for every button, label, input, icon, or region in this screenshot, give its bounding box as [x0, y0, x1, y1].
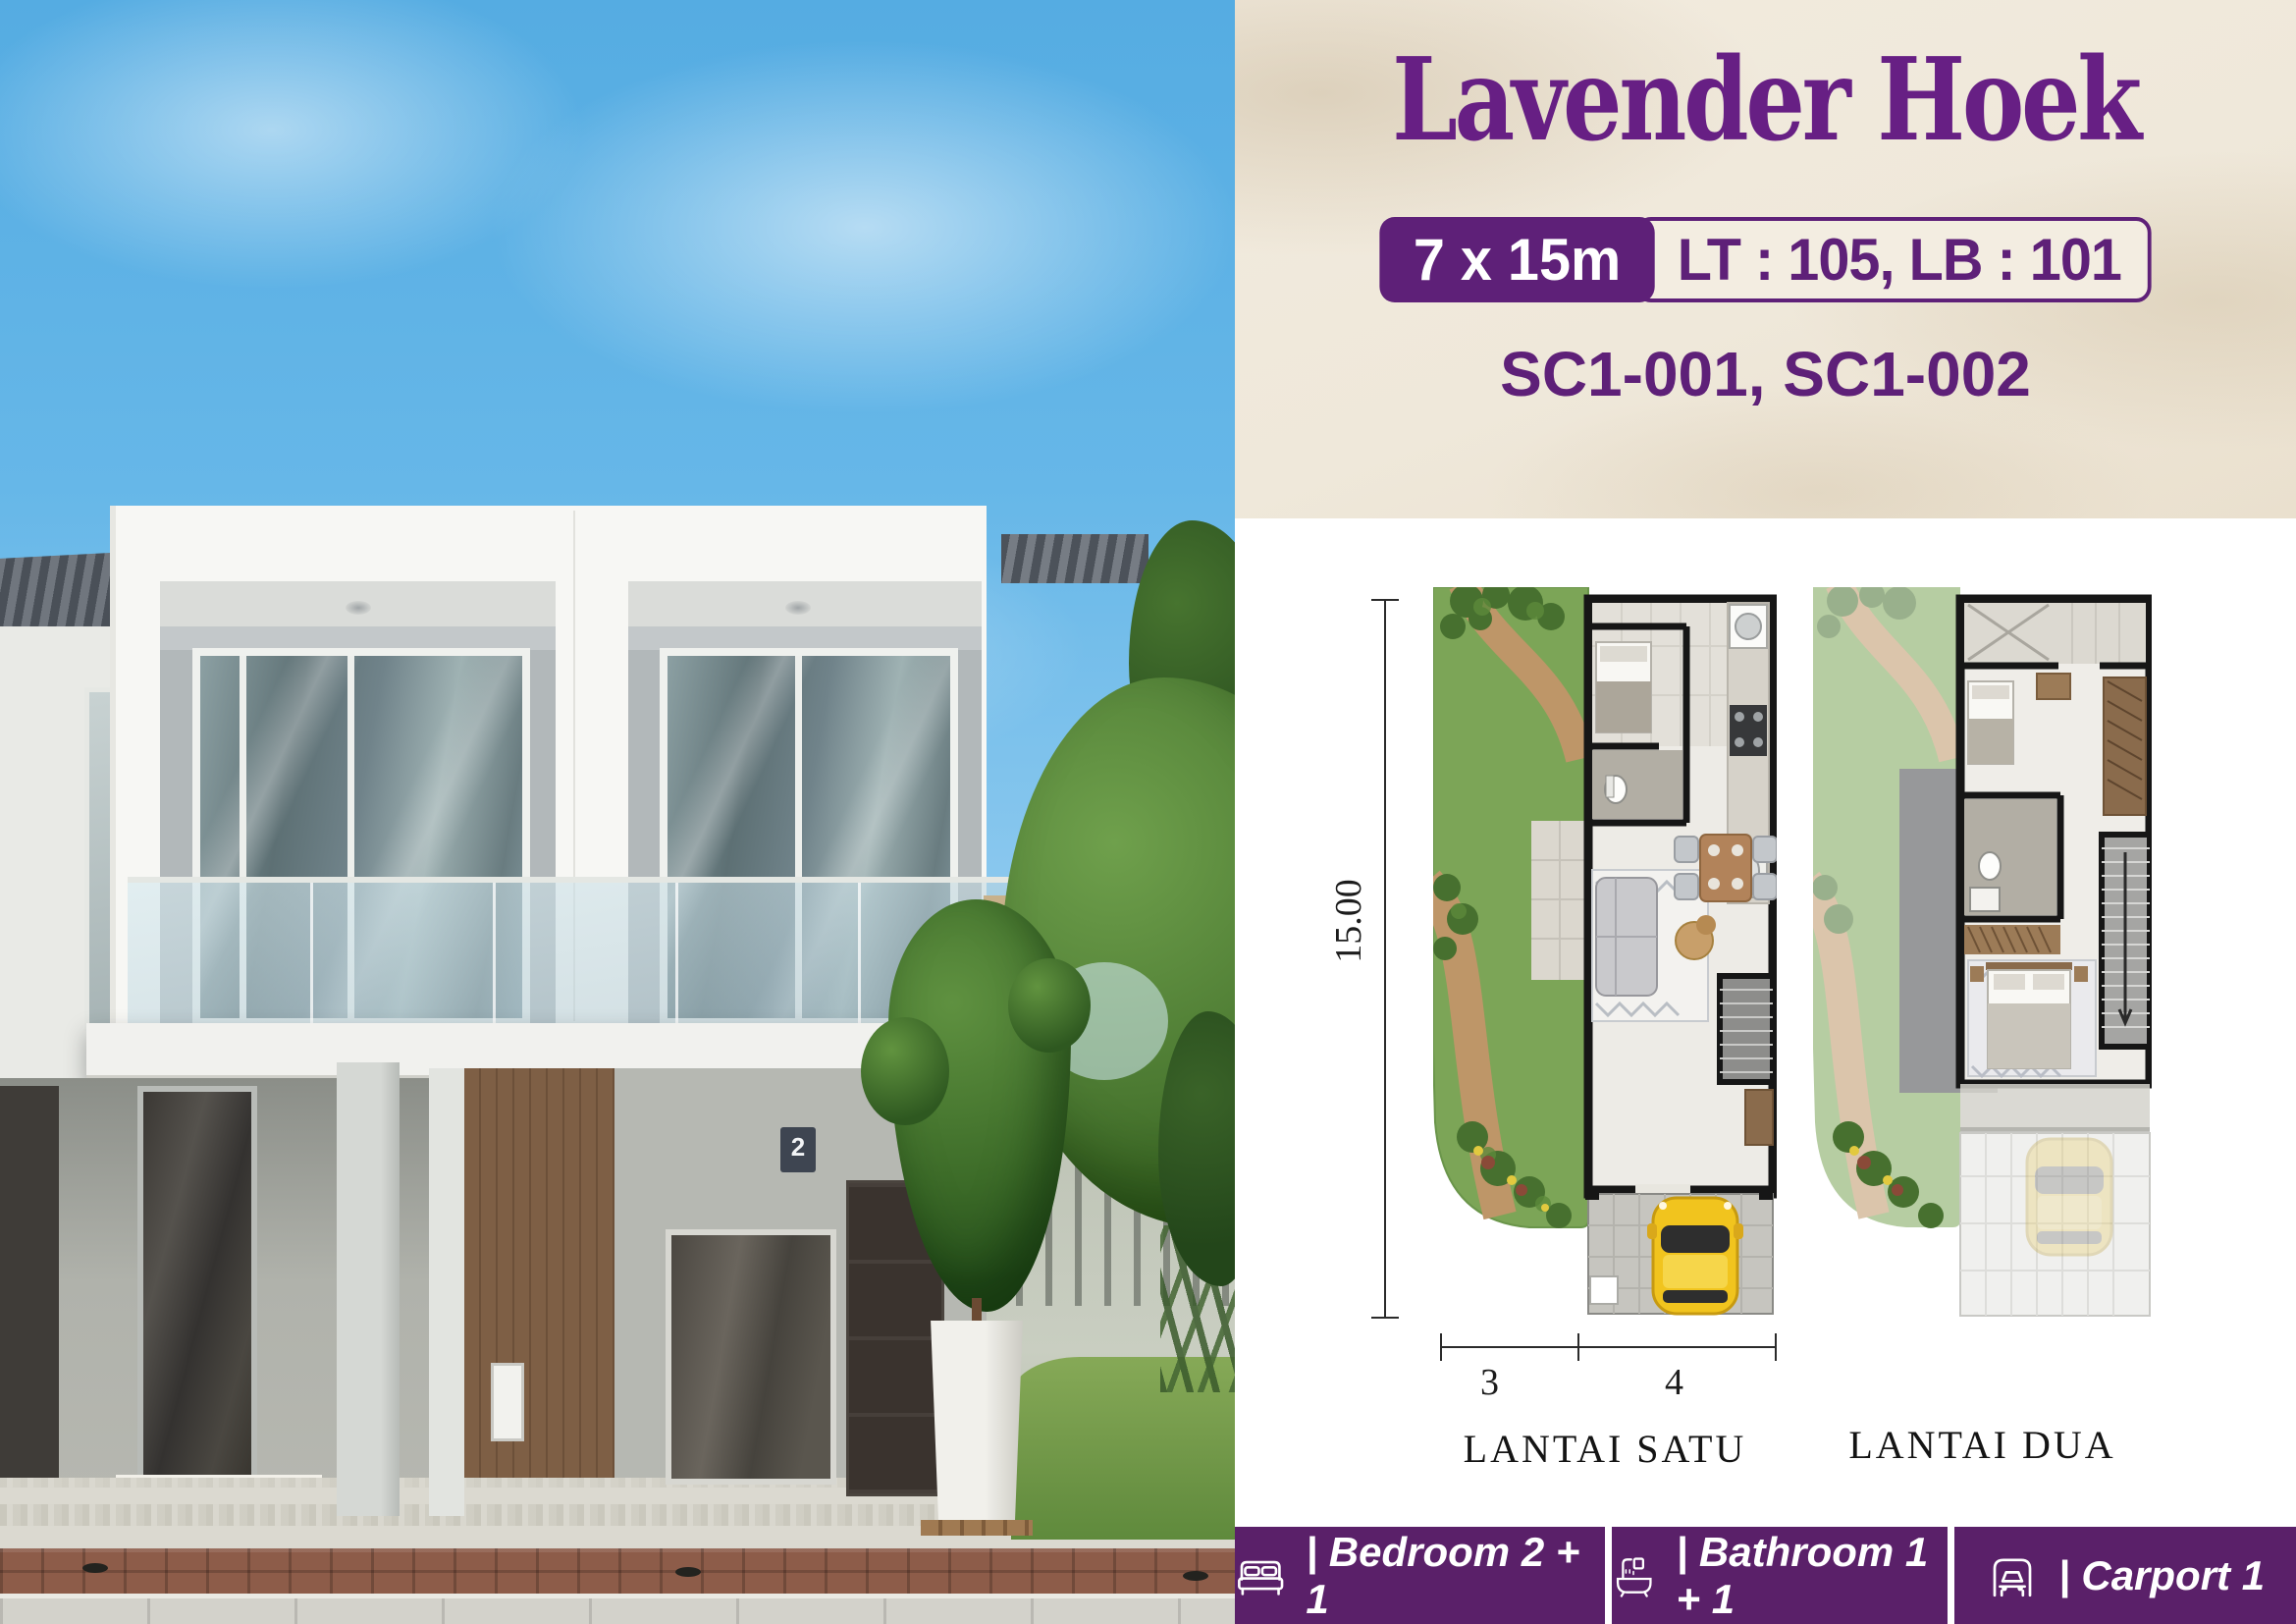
ceiling-light: [785, 601, 811, 615]
bed-icon: [1235, 1549, 1286, 1602]
dimension-tick: [1440, 1333, 1442, 1361]
unit-codes: SC1-001, SC1-002: [1235, 338, 2296, 410]
badge-row: 7 x 15m LT : 105, LB : 101: [1256, 217, 2275, 302]
white-planter: [927, 1321, 1027, 1527]
plan2-house: [1960, 599, 2150, 1084]
page-title: Lavender Hoek: [1330, 41, 2200, 161]
feature-carport-label: | Carport 1: [2058, 1552, 2265, 1599]
feature-bathroom-label: | Bathroom 1 + 1: [1677, 1529, 1948, 1623]
utility-box: [491, 1363, 524, 1441]
plan2-ghost-car: [2027, 1139, 2111, 1255]
planter-base: [921, 1520, 1033, 1536]
plan1-patio: [1531, 821, 1588, 980]
dimension-tick: [1577, 1333, 1579, 1361]
dimension-line-vertical: [1384, 599, 1386, 1319]
floor-plan-lantai-dua: [1813, 587, 2152, 1319]
glass-joint: [493, 883, 496, 1026]
porch-pillar: [337, 1062, 400, 1516]
glass-joint: [310, 883, 313, 1026]
floor1-label: LANTAI SATU: [1433, 1426, 1777, 1472]
dimension-line-horizontal: [1440, 1346, 1777, 1348]
brochure-page: 2 Lavender Hoek 7 x 15m LT : 105, LB :: [0, 0, 2296, 1624]
dimension-label-15: 15.00: [1327, 862, 1370, 980]
plan2-carport-faded: [1960, 1133, 2150, 1316]
plan2-balcony-faded: [1960, 1084, 2150, 1133]
glass-joint: [858, 883, 861, 1026]
porch-post: [429, 1068, 464, 1516]
glass-joint: [675, 883, 678, 1026]
plan1-carport: [1585, 1186, 1773, 1314]
wood-slat-wall: [464, 1068, 614, 1518]
neighbor-glass-door: [137, 1086, 257, 1489]
feature-bar: | Bedroom 2 + 1 | Bathroom 1 + 1: [1235, 1527, 2296, 1624]
floor-plan-lantai-satu: [1433, 587, 1777, 1319]
drain-cap: [1183, 1571, 1208, 1581]
feature-bedroom-label: | Bedroom 2 + 1: [1306, 1529, 1605, 1623]
street-curb: [0, 1594, 1235, 1624]
house-number-plate: 2: [780, 1127, 816, 1172]
facade-left-edge: [110, 506, 116, 1036]
floor2-label: LANTAI DUA: [1813, 1422, 2152, 1468]
house-photo: 2: [0, 0, 1235, 1624]
plan1-house: [1588, 599, 1777, 1194]
feature-carport: | Carport 1: [1954, 1527, 2296, 1624]
drain-cap: [675, 1567, 701, 1577]
ceiling-light: [346, 601, 371, 615]
neighbor-door-sliver: [0, 1086, 59, 1483]
drain-cap: [82, 1563, 108, 1573]
ground-floor-window: [666, 1229, 836, 1485]
tile-roof-sliver: [1001, 534, 1148, 583]
plan1-car: [1647, 1198, 1743, 1314]
dimension-label-3: 3: [1480, 1361, 1499, 1404]
brick-driveway: [0, 1548, 1235, 1594]
area-badge: LT : 105, LB : 101: [1636, 217, 2152, 302]
car-icon: [1986, 1549, 2039, 1602]
feature-bathroom: | Bathroom 1 + 1: [1612, 1527, 1948, 1624]
bath-icon: [1612, 1549, 1657, 1602]
feature-bedroom: | Bedroom 2 + 1: [1235, 1527, 1605, 1624]
dimension-label-4: 4: [1665, 1361, 1683, 1404]
dimension-tick: [1775, 1333, 1777, 1361]
info-panel: Lavender Hoek 7 x 15m LT : 105, LB : 101…: [1235, 0, 2296, 1624]
size-badge: 7 x 15m: [1379, 217, 1654, 302]
